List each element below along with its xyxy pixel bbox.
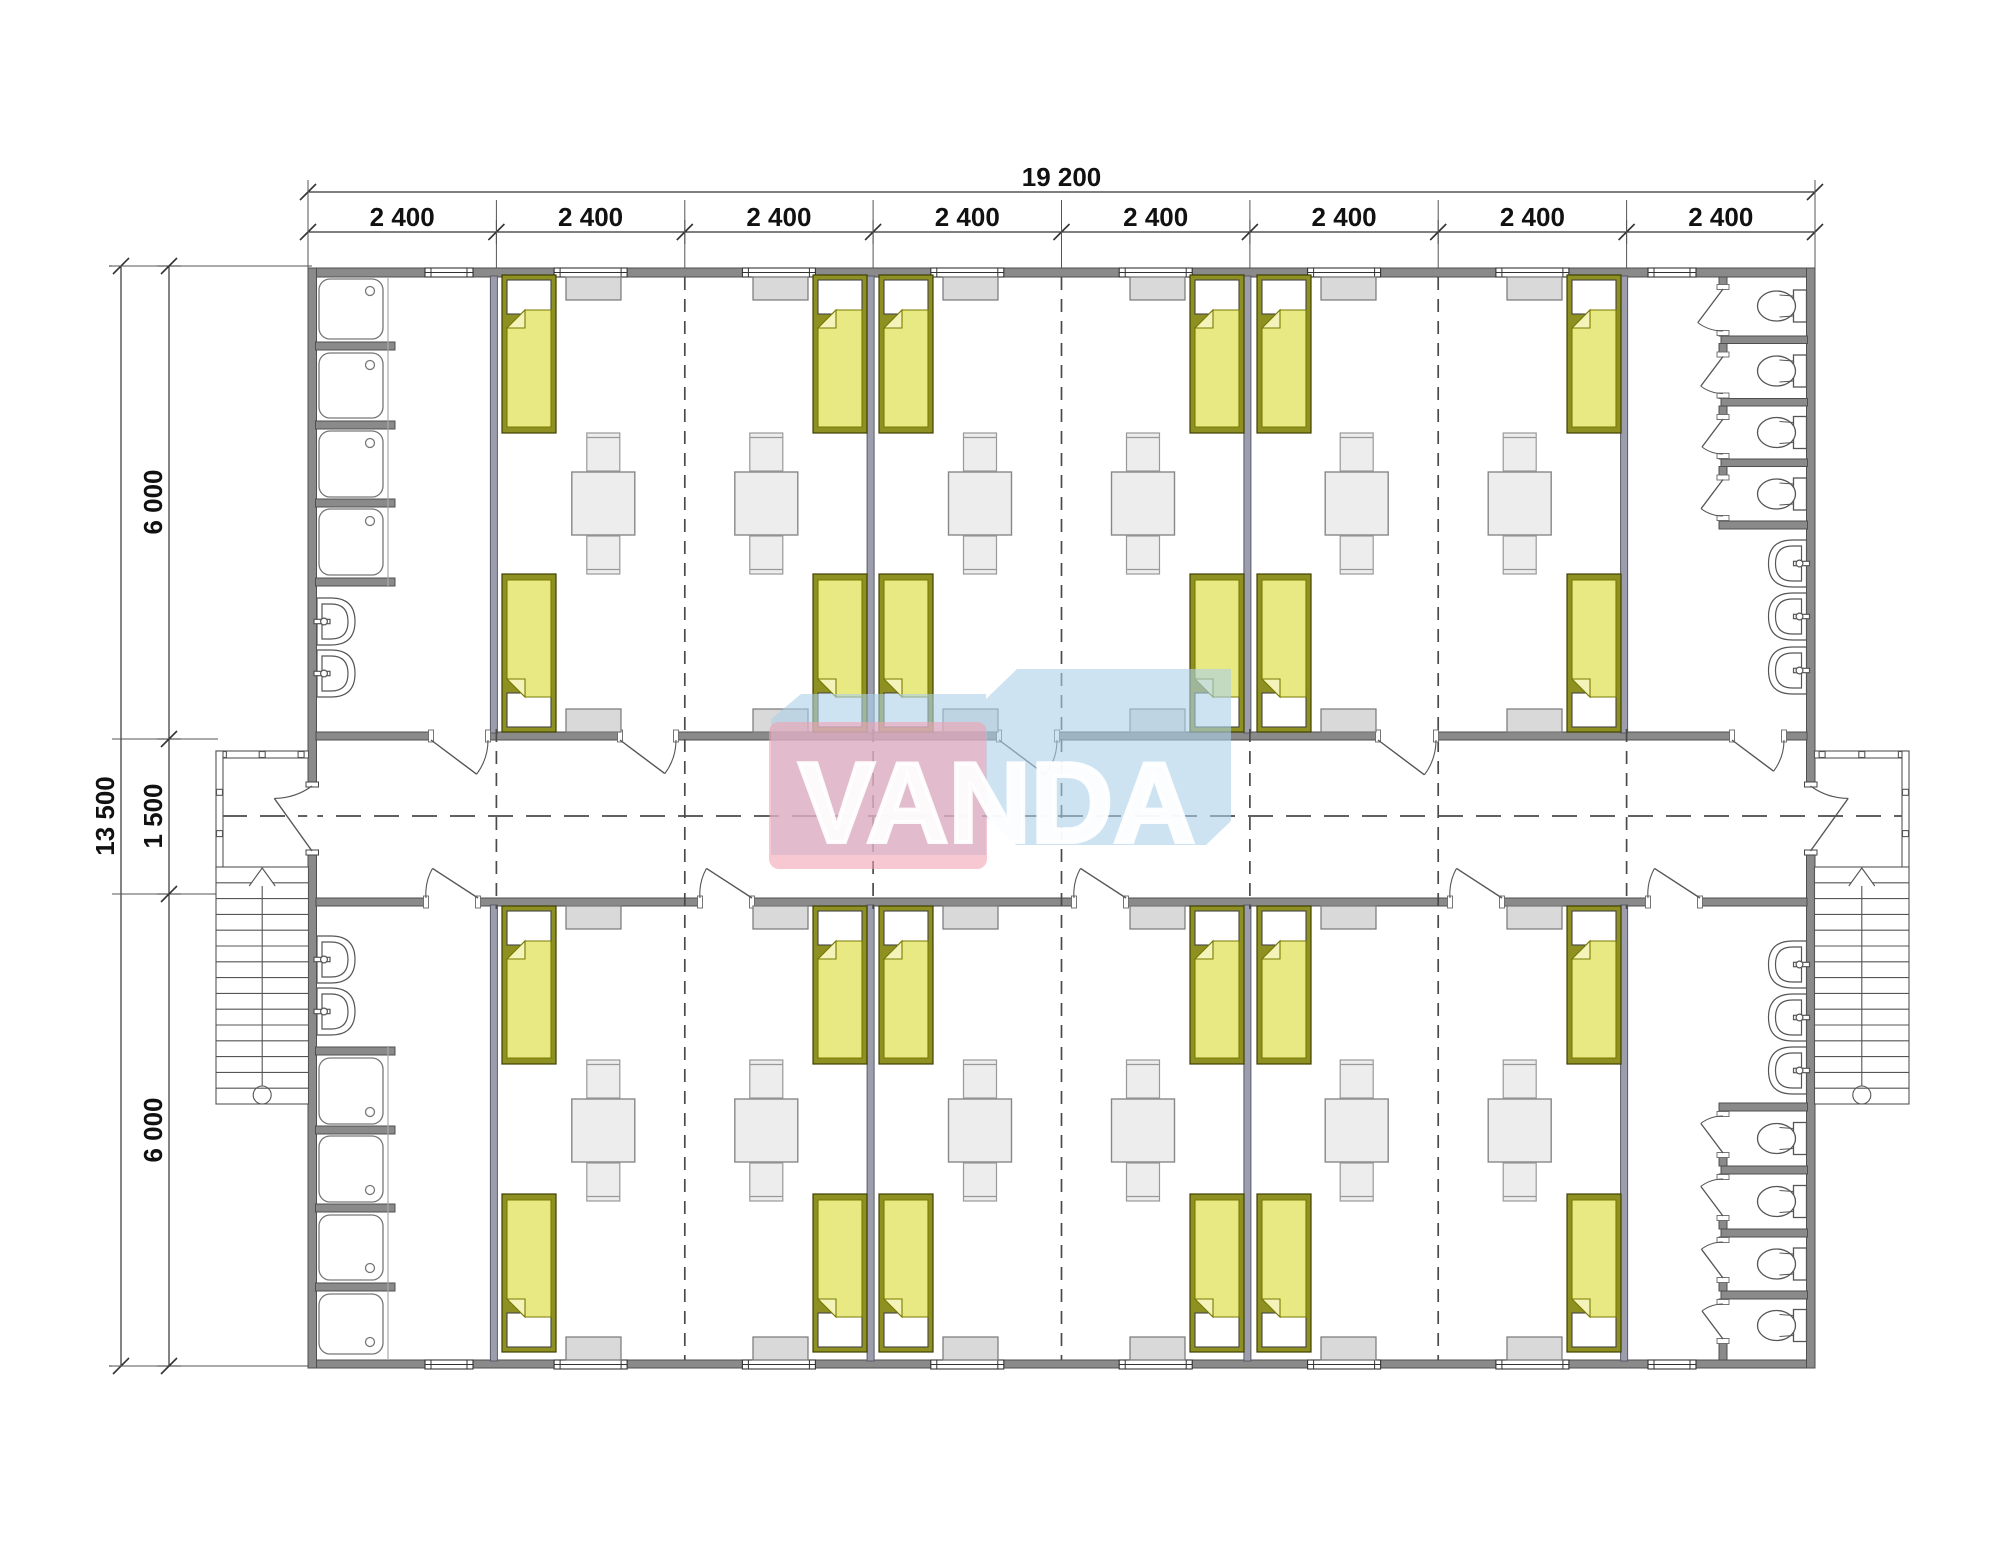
svg-text:6 000: 6 000: [138, 469, 168, 534]
svg-text:2 400: 2 400: [746, 202, 811, 232]
svg-text:2 400: 2 400: [558, 202, 623, 232]
svg-text:1 500: 1 500: [138, 783, 168, 848]
svg-text:2 400: 2 400: [1312, 202, 1377, 232]
svg-text:VANDA: VANDA: [799, 740, 1196, 867]
svg-text:2 400: 2 400: [1123, 202, 1188, 232]
svg-text:2 400: 2 400: [1500, 202, 1565, 232]
svg-text:2 400: 2 400: [935, 202, 1000, 232]
svg-text:19 200: 19 200: [1022, 162, 1102, 192]
svg-text:6 000: 6 000: [138, 1097, 168, 1162]
svg-text:13 500: 13 500: [90, 776, 120, 856]
svg-text:2 400: 2 400: [1688, 202, 1753, 232]
svg-text:2 400: 2 400: [370, 202, 435, 232]
